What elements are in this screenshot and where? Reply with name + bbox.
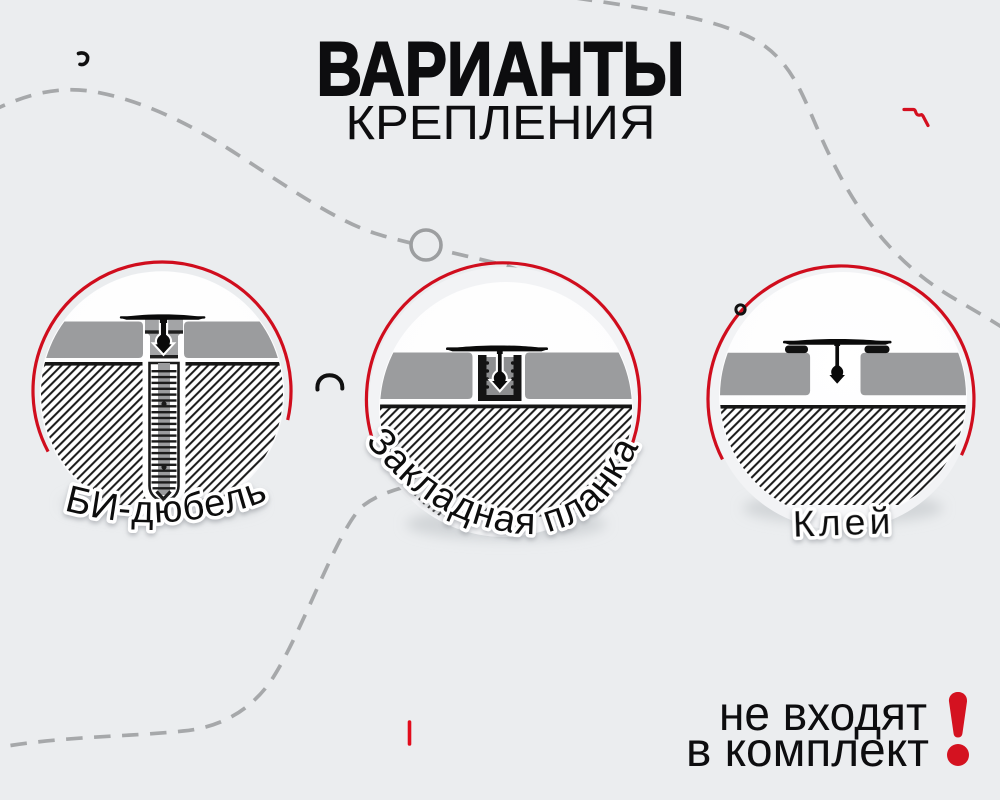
svg-text:КРЕПЛЕНИЯ: КРЕПЛЕНИЯ <box>346 97 656 150</box>
svg-text:в комплект: в комплект <box>686 724 929 777</box>
svg-text:Клей: Клей <box>792 499 895 545</box>
